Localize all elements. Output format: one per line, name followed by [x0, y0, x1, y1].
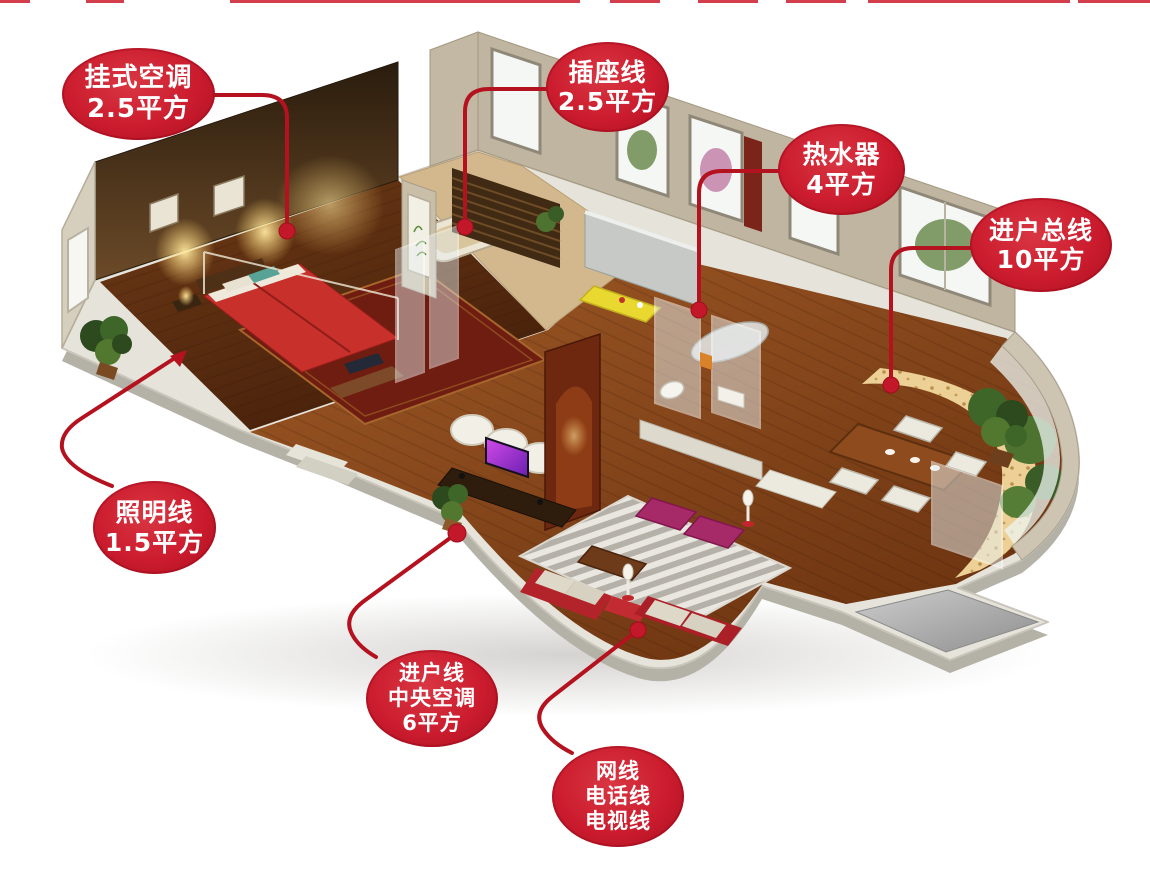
marker-dot-service-entrance: [883, 377, 899, 393]
callout-line: 照明线: [115, 498, 193, 528]
callout-lighting-wire: 照明线 1.5平方: [93, 481, 216, 574]
short-wall: [430, 32, 478, 166]
kitchen-item: [637, 302, 643, 308]
glass-pane: [430, 226, 458, 368]
callout-line: 6平方: [402, 711, 462, 736]
callout-entry-central-ac: 进户线 中央空调 6平方: [366, 650, 498, 747]
callout-wall-ac: 挂式空调 2.5平方: [62, 48, 215, 140]
curtain: [744, 136, 762, 232]
marker-dot-wall-ac: [279, 223, 295, 239]
window: [492, 49, 540, 153]
kitchen-item: [619, 297, 625, 303]
tableware: [885, 449, 895, 455]
callout-line: 2.5平方: [87, 94, 190, 125]
window-foliage: [627, 130, 657, 170]
callout-line: 热水器: [802, 140, 880, 170]
arch-glow: [560, 416, 588, 456]
marker-dot-water-heater: [691, 302, 707, 318]
marker-dot-socket-wire: [457, 219, 473, 235]
callout-line: 中央空调: [388, 686, 476, 711]
marker-dot-entry-central-ac: [448, 524, 466, 542]
callout-line: 1.5平方: [105, 528, 204, 558]
callout-line: 10平方: [997, 245, 1086, 275]
glass-pane: [396, 240, 424, 382]
marker-dot-network-phone-tv: [630, 622, 646, 638]
left-window: [68, 228, 88, 312]
tableware: [910, 457, 920, 463]
speaker: [537, 499, 543, 505]
callout-line: 电话线: [585, 784, 651, 809]
callout-line: 进户总线: [989, 216, 1093, 246]
callout-service-entrance: 进户总线 10平方: [970, 198, 1112, 292]
callout-line: 电视线: [585, 809, 651, 834]
callout-line: 进户线: [399, 661, 465, 686]
callout-line: 2.5平方: [558, 87, 657, 117]
lamp-glow: [275, 155, 385, 255]
callout-network-phone-tv: 网线 电话线 电视线: [552, 746, 684, 847]
callout-line: 4平方: [806, 170, 876, 200]
bedside-lamp: [178, 286, 194, 306]
callout-socket-wire: 插座线 2.5平方: [546, 42, 669, 132]
callout-line: 插座线: [568, 58, 646, 88]
speaker: [459, 473, 465, 479]
callout-water-heater: 热水器 4平方: [778, 124, 905, 215]
glass-pane: [712, 316, 760, 428]
page-root: 挂式空调 2.5平方 插座线 2.5平方 热水器 4平方 进户总线 10平方 照…: [0, 0, 1150, 872]
callout-line: 网线: [596, 759, 640, 784]
callout-line: 挂式空调: [84, 63, 192, 94]
